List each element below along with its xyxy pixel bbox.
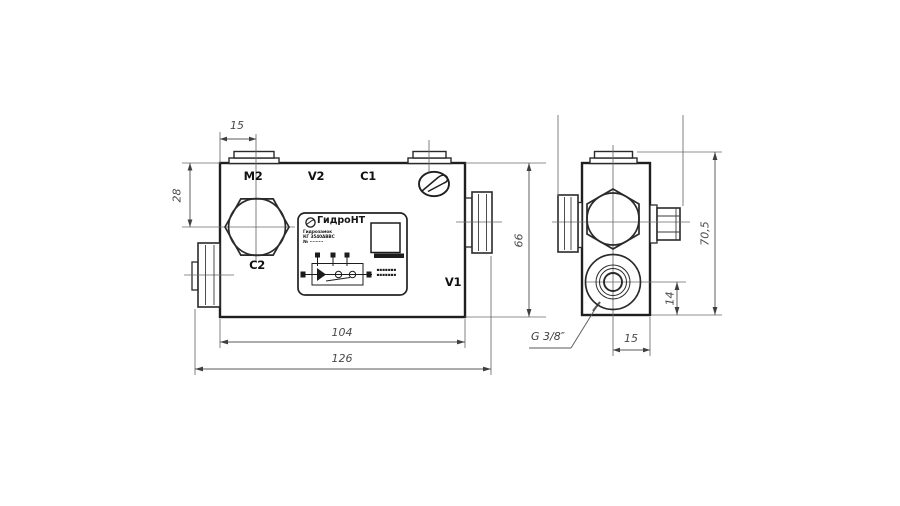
nameplate-info-line-3: № ········· [303, 240, 323, 245]
dim-port-offset-side [613, 348, 650, 353]
side-fitting-profile [650, 205, 680, 243]
logo-mark-icon [419, 172, 449, 196]
dim-overall-length [195, 367, 491, 372]
nameplate-square-frame [371, 223, 404, 258]
nameplate-note-line-2: ▪▪▪▪▪▪▪ [377, 273, 397, 278]
dim-text-15-side: 15 [620, 332, 642, 345]
dim-text-104: 104 [320, 326, 364, 339]
side-view [558, 152, 680, 316]
valve-body-side [582, 163, 650, 315]
port-label-m2: M2 [241, 169, 265, 183]
dim-text-28: 28 [171, 183, 184, 209]
thread-callout-text: G 3/8″ [531, 330, 565, 343]
dim-text-14: 14 [664, 289, 677, 309]
top-cap-side [590, 152, 637, 164]
dim-text-126: 126 [320, 352, 364, 365]
dim-overall-height-side [713, 152, 718, 315]
dim-plug-depth [188, 163, 193, 227]
dim-port-offset-front [220, 137, 256, 142]
top-cap-right [408, 152, 451, 164]
side-nut-profile [558, 195, 582, 252]
nameplate-brand: ГидроНТ [317, 215, 365, 226]
port-label-v1: V1 [441, 275, 465, 289]
port-label-c2: C2 [245, 258, 269, 272]
dim-text-15-front: 15 [226, 119, 248, 132]
dim-block-height [527, 163, 532, 317]
top-cap-left [229, 152, 279, 164]
technical-drawing [0, 0, 900, 506]
dim-text-66: 66 [513, 228, 526, 254]
port-label-v2: V2 [304, 169, 328, 183]
dim-block-length [220, 340, 465, 345]
drawing-canvas: M2 V2 C1 C2 V1 15 28 66 104 126 70,5 14 … [0, 0, 900, 506]
port-label-c1: C1 [356, 169, 380, 183]
dim-text-70-5: 70,5 [699, 217, 712, 251]
